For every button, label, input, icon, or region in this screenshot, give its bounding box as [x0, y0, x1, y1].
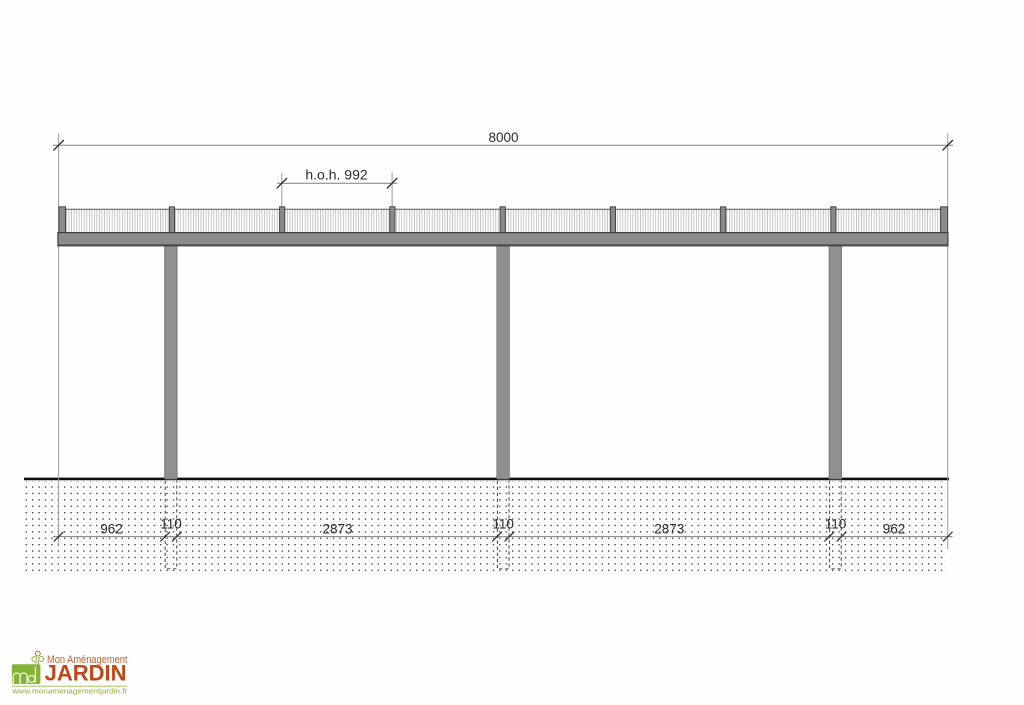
svg-text:110: 110	[160, 516, 182, 531]
svg-text:962: 962	[883, 521, 906, 536]
svg-text:www.monamenagementjardin.fr: www.monamenagementjardin.fr	[11, 686, 128, 695]
svg-text:h.o.h. 992: h.o.h. 992	[305, 167, 367, 183]
svg-text:JARDIN: JARDIN	[45, 661, 127, 686]
svg-text:110: 110	[825, 516, 847, 531]
svg-text:110: 110	[492, 516, 514, 531]
svg-text:2873: 2873	[322, 521, 352, 536]
svg-text:2873: 2873	[654, 521, 684, 536]
svg-text:8000: 8000	[488, 130, 518, 145]
svg-text:962: 962	[100, 521, 123, 536]
